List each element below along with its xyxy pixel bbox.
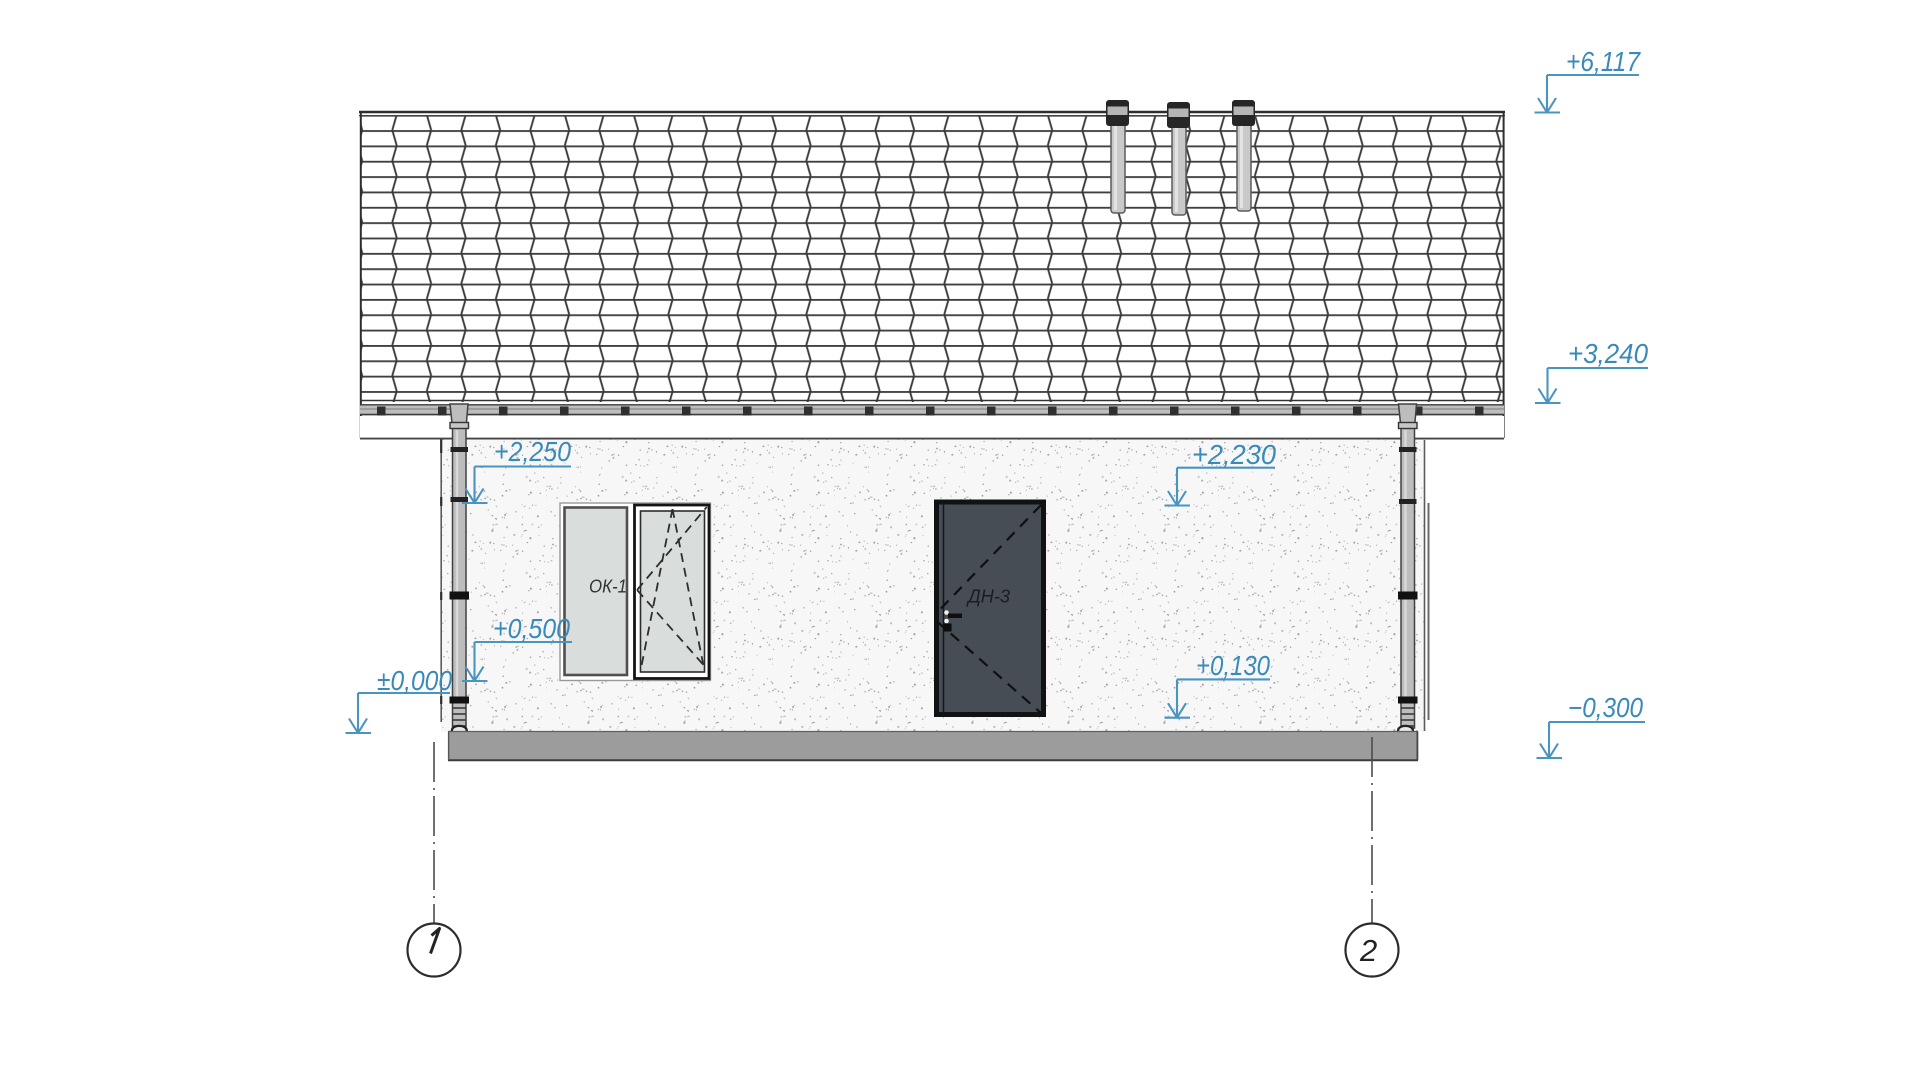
svg-text:ДН-3: ДН-3 (966, 587, 1010, 607)
svg-text:2: 2 (1359, 933, 1377, 968)
svg-text:+0,130: +0,130 (1196, 650, 1271, 681)
svg-text:−0,300: −0,300 (1568, 692, 1644, 723)
svg-text:+3,240: +3,240 (1568, 338, 1649, 369)
svg-text:ОК-1: ОК-1 (589, 577, 627, 597)
svg-text:+6,117: +6,117 (1566, 46, 1642, 77)
svg-text:+2,250: +2,250 (494, 436, 572, 467)
svg-text:+0,500: +0,500 (493, 613, 571, 644)
svg-text:+2,230: +2,230 (1192, 439, 1277, 470)
svg-text:±0,000: ±0,000 (377, 665, 453, 696)
